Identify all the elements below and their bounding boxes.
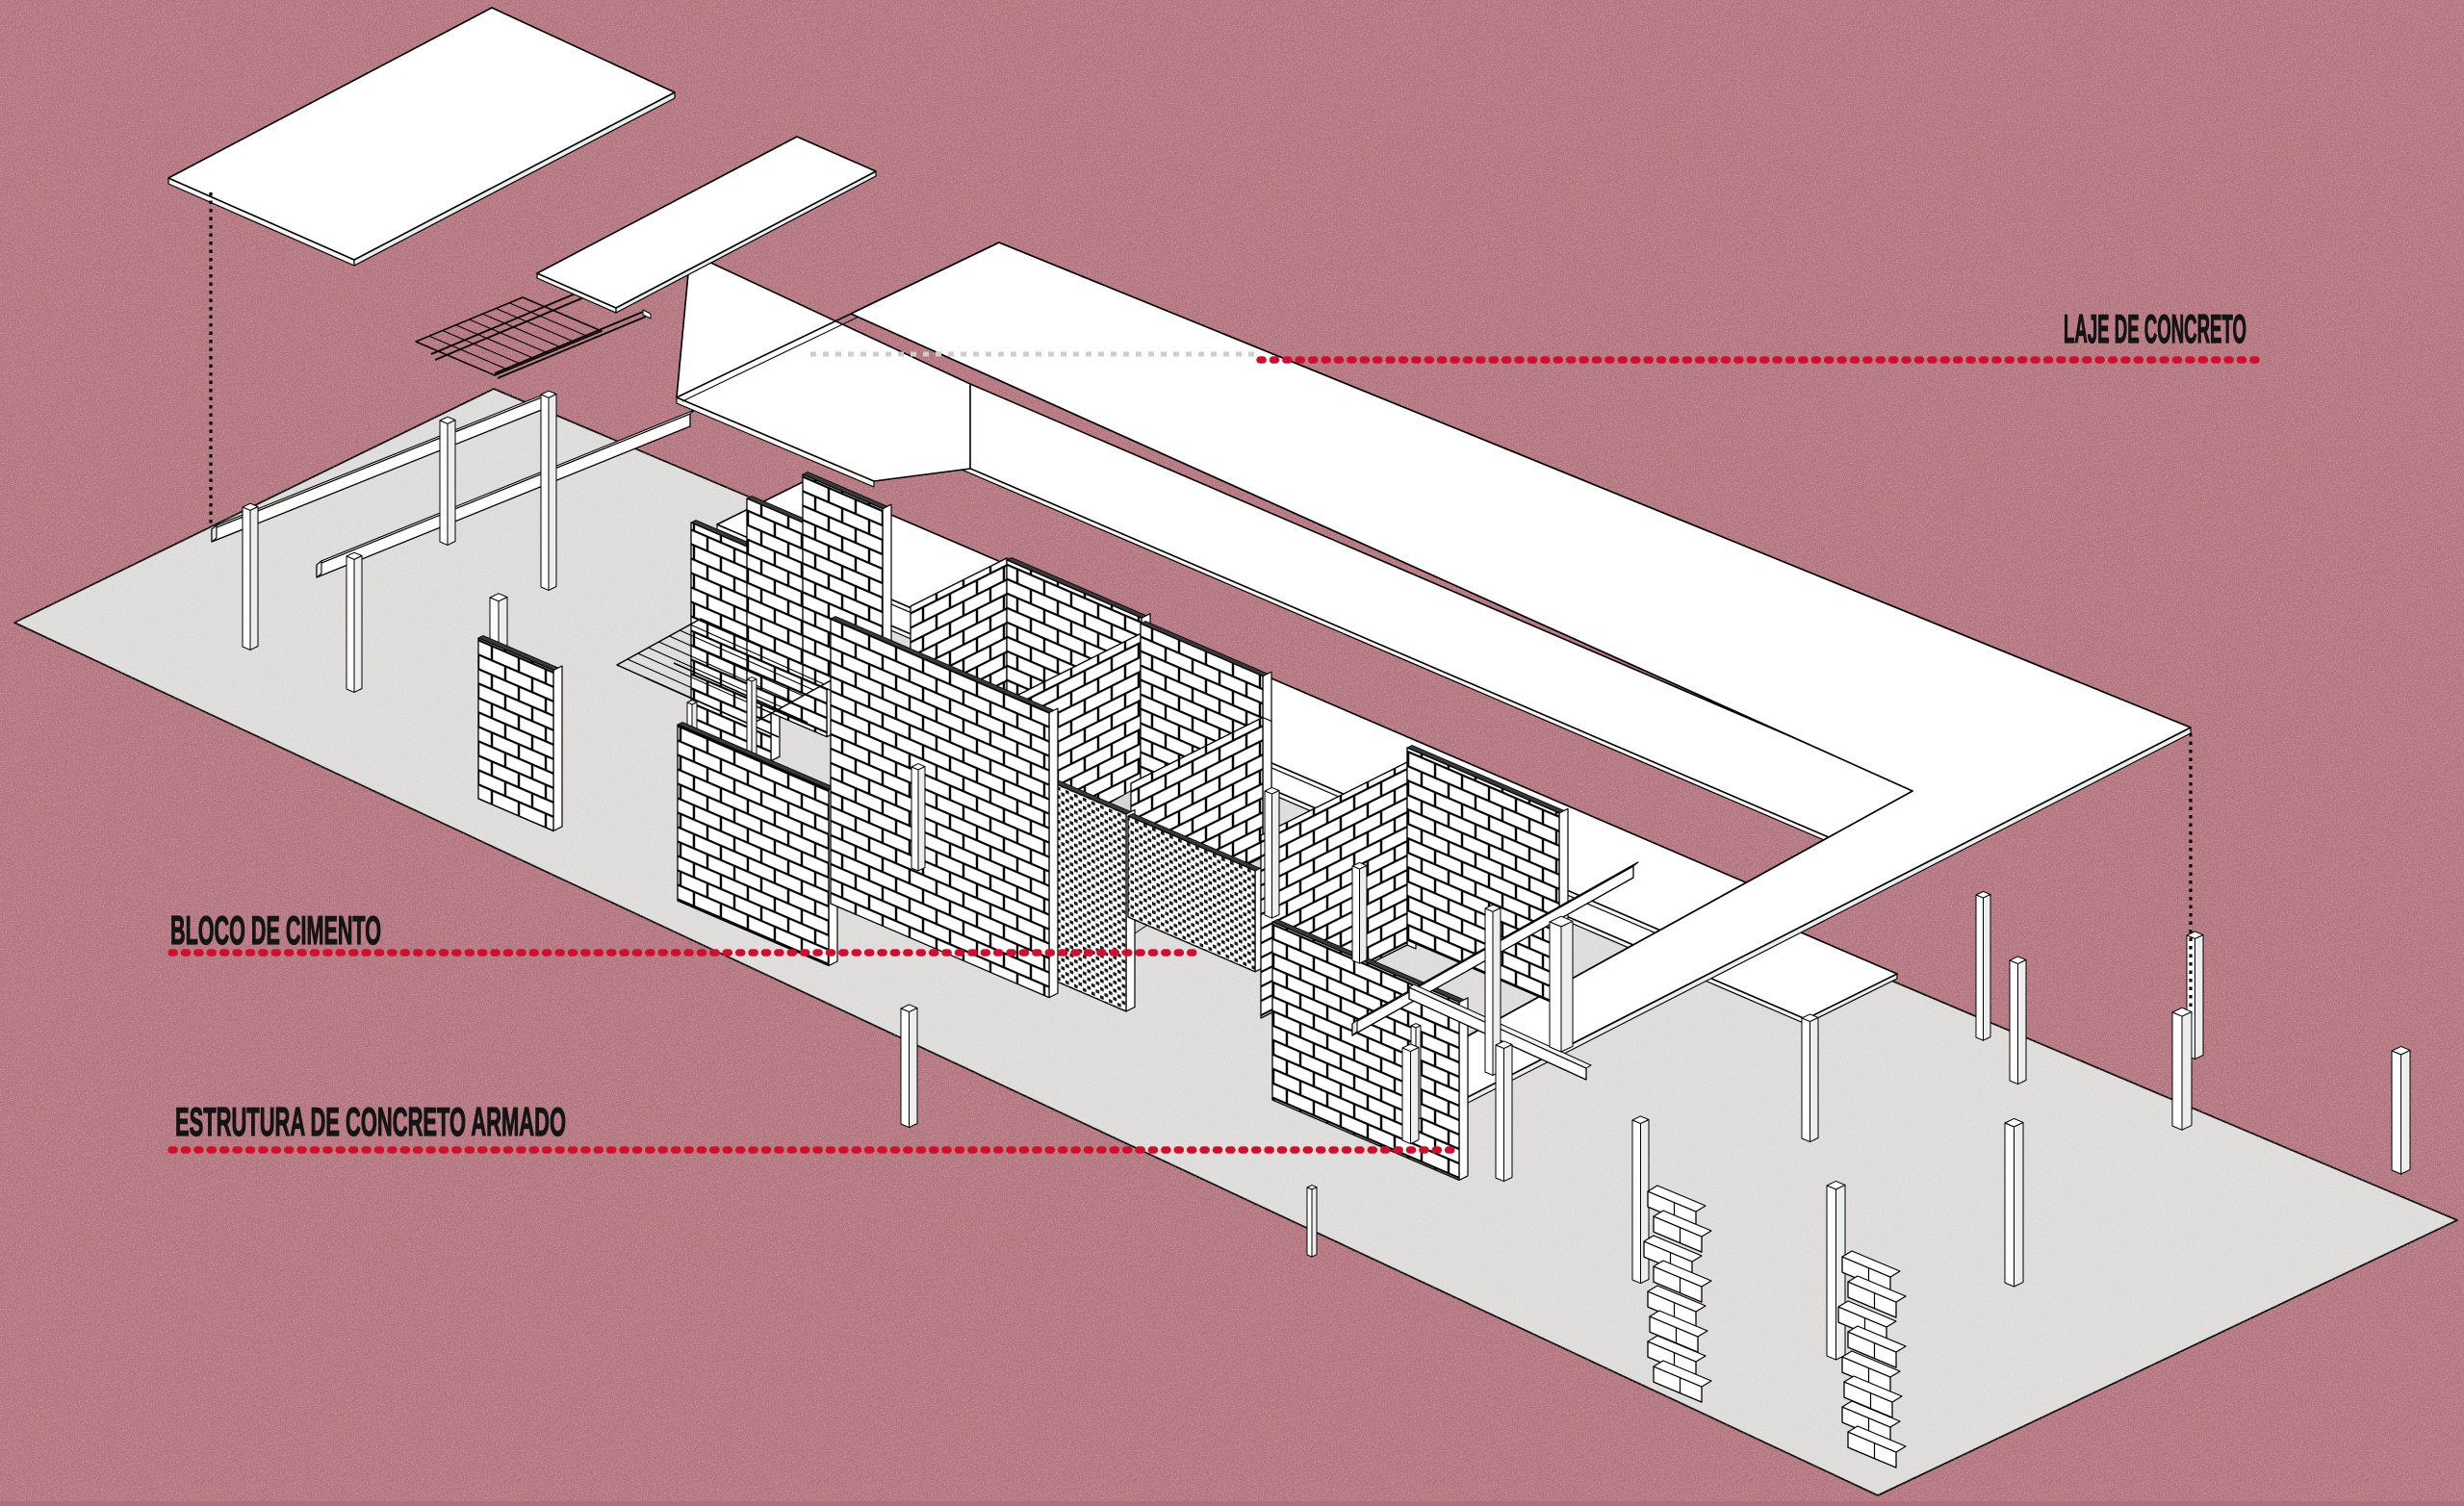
svg-text:BLOCO DE CIMENTO: BLOCO DE CIMENTO xyxy=(170,907,381,953)
svg-text:ESTRUTURA DE CONCRETO ARMADO: ESTRUTURA DE CONCRETO ARMADO xyxy=(175,1099,566,1144)
svg-text:LAJE DE CONCRETO: LAJE DE CONCRETO xyxy=(2064,306,2246,351)
